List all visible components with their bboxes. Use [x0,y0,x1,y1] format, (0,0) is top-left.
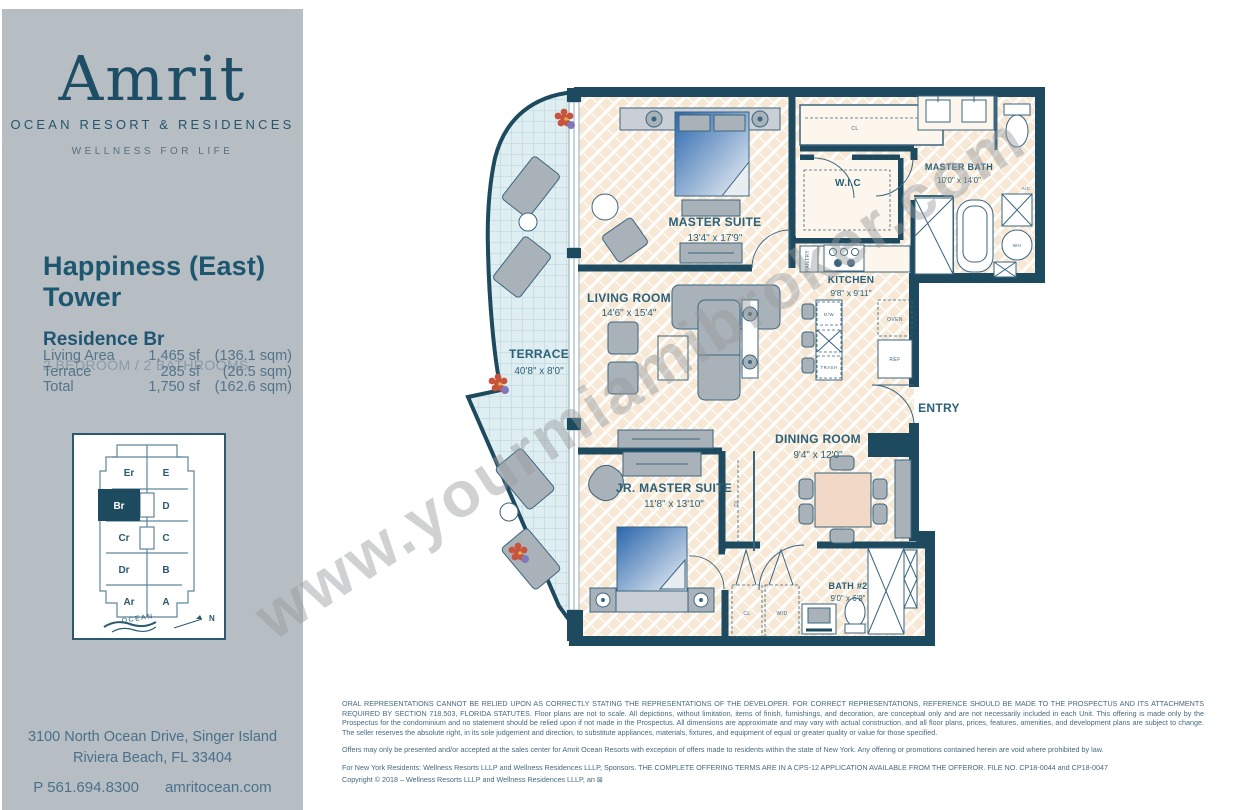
legal-disclaimer: ORAL REPRESENTATIONS CANNOT BE RELIED UP… [342,699,1204,792]
disclaimer-paragraph-3: For New York Residents: Wellness Resorts… [342,763,1204,773]
ref-label: REF [889,357,900,363]
logo-tagline: WELLNESS FOR LIFE [2,146,303,157]
wh-label: WH [1013,243,1021,248]
dims-terrace: 40'8" x 8'0" [514,366,564,377]
unit-b: B [162,565,169,576]
info-panel: Amrit OCEAN RESORT & RESIDENCES WELLNESS… [2,9,303,810]
oven-label: OVEN [887,317,903,323]
entry-closet [868,433,914,457]
disclaimer-paragraph-2: Offers may only be presented and/or acce… [342,745,1204,755]
stat-sqm: (136.1 sqm) [200,349,292,364]
ac-label: A/C [1022,186,1031,191]
stat-row-total: Total 1,750 sf (162.6 sqm) [43,380,265,395]
logo-subtitle: OCEAN RESORT & RESIDENCES [2,117,303,132]
disclaimer-copyright: Copyright © 2018 – Wellness Resorts LLLP… [342,775,1204,785]
label-master-suite: MASTER SUITE [669,215,762,229]
label-entry: ENTRY [918,401,960,415]
brochure-page: { "brand": { "logo_text": "Amrit", "logo… [0,0,1242,810]
label-kitchen: KITCHEN [828,275,875,286]
unit-dr: Dr [118,565,129,576]
stat-sf: 285 sf [138,365,200,380]
stat-label: Terrace [43,365,138,380]
area-stats: Living Area 1,465 sf (136.1 sqm) Terrace… [43,349,265,396]
trash-label: TRASH [821,365,838,370]
stat-sf: 1,465 sf [138,349,200,364]
label-master-bath: MASTER BATH [925,162,993,172]
dims-kitchen: 9'8" x 9'11" [830,288,871,298]
phone-number: P 561.694.8300 [33,777,139,798]
dims-jr-master: 11'8" x 13'10" [644,499,704,510]
stat-label: Living Area [43,349,138,364]
label-living-room: LIVING ROOM [587,291,671,305]
dims-master-suite: 13'4" x 17'9" [688,233,743,244]
unit-ar: Ar [123,597,134,608]
brand-logo: Amrit OCEAN RESORT & RESIDENCES WELLNESS… [2,47,303,157]
key-plan-drawing: Er E Br D Cr C Dr B Ar A OCEAN N [74,435,220,634]
stat-row-living: Living Area 1,465 sf (136.1 sqm) [43,349,265,364]
dims-master-bath: 10'0" x 14'0" [937,176,981,185]
closet-cl-label: CL [851,126,858,132]
stat-row-terrace: Terrace 285 sf (26.5 sqm) [43,365,265,380]
pantry-label: PANTRY [805,250,811,272]
unit-er: Er [124,468,135,479]
logo-wordmark: Amrit [2,47,303,111]
jr-closet-cl-label: CL [734,499,740,506]
walk-in-closet [796,158,898,238]
hall-cl-label: CL [743,611,750,617]
dims-dining-room: 9'4" x 12'0" [793,450,843,461]
contact-block: 3100 North Ocean Drive, Singer Island Ri… [2,727,303,798]
unit-e: E [163,468,170,479]
floor-plan: CL [302,0,1242,700]
stat-sqm: (26.5 sqm) [200,365,292,380]
unit-br: Br [113,501,124,512]
tower-name: Happiness (East) Tower [43,251,283,313]
unit-a: A [162,597,169,608]
label-wic: W.I.C [835,178,861,189]
unit-d: D [162,501,169,512]
label-bath2: BATH #2 [829,581,868,591]
north-label: N [209,614,215,623]
label-dining-room: DINING ROOM [775,432,861,446]
website-url: amritocean.com [165,777,272,798]
dw-label: D/W [824,312,834,317]
wd-label: W/D [777,611,788,617]
address-line1: 3100 North Ocean Drive, Singer Island [2,727,303,748]
label-jr-master: JR. MASTER SUITE [616,481,732,495]
stat-sqm: (162.6 sqm) [200,380,292,395]
building-outline [100,445,194,617]
unit-c: C [162,533,169,544]
dims-living-room: 14'6" x 15'4" [602,308,657,319]
stat-sf: 1,750 sf [138,380,200,395]
building-key-plan: Er E Br D Cr C Dr B Ar A OCEAN N [72,433,226,640]
unit-cr: Cr [118,533,129,544]
disclaimer-paragraph-1: ORAL REPRESENTATIONS CANNOT BE RELIED UP… [342,699,1204,737]
ocean-label: OCEAN [121,613,154,625]
dims-bath2: 9'0" x 6'9" [831,594,866,603]
address-line2: Riviera Beach, FL 33404 [2,748,303,769]
stat-label: Total [43,380,138,395]
north-arrow-icon [174,615,202,628]
label-terrace: TERRACE [509,347,569,361]
